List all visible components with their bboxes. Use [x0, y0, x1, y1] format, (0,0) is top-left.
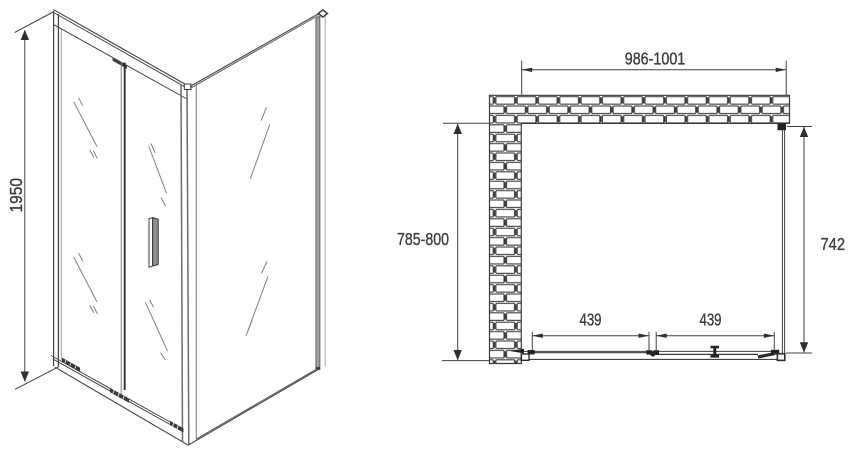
svg-text:1950: 1950: [6, 178, 26, 213]
svg-text:742: 742: [821, 234, 846, 254]
svg-text:439: 439: [700, 310, 722, 330]
svg-text:986-1001: 986-1001: [625, 49, 686, 69]
svg-text:439: 439: [580, 310, 602, 330]
svg-text:785-800: 785-800: [397, 229, 449, 249]
